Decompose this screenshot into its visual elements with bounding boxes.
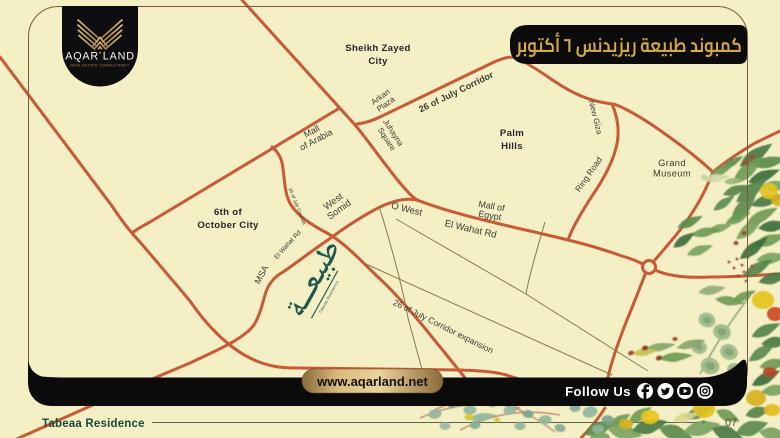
svg-text:Follow Us: Follow Us: [565, 384, 631, 399]
svg-text:www.aqarland.net: www.aqarland.net: [316, 374, 428, 389]
svg-text:City: City: [368, 56, 388, 67]
svg-text:AQAR LAND: AQAR LAND: [65, 51, 135, 63]
svg-text:07: 07: [725, 417, 737, 429]
svg-text:REAL ESTATE CONSULTANCY: REAL ESTATE CONSULTANCY: [70, 64, 130, 68]
svg-text:Tabeaa Residence: Tabeaa Residence: [42, 418, 145, 430]
svg-text:Hills: Hills: [501, 141, 523, 152]
svg-text:Sheikh Zayed: Sheikh Zayed: [345, 43, 410, 54]
svg-text:Palm: Palm: [500, 128, 524, 139]
svg-text:Grand: Grand: [658, 158, 686, 168]
svg-text:Museum: Museum: [653, 169, 691, 179]
svg-text:6th of: 6th of: [214, 207, 242, 218]
svg-text:October City: October City: [197, 220, 259, 231]
